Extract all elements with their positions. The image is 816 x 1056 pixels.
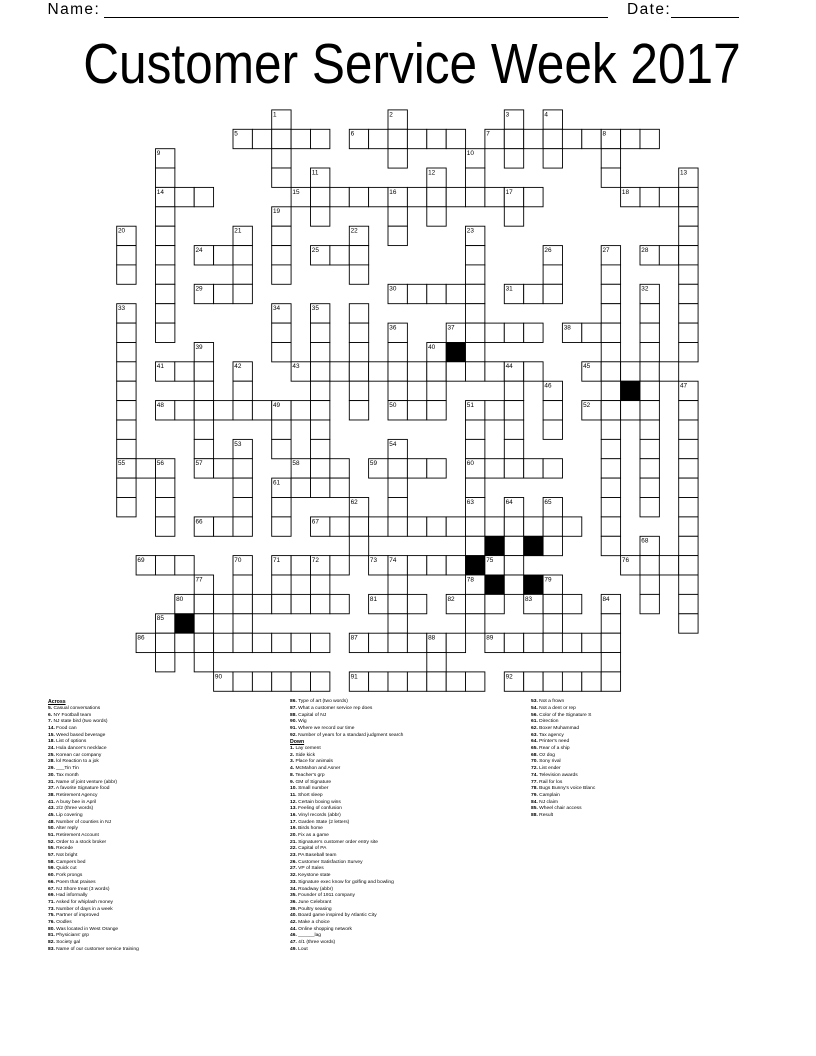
svg-text:80: 80: [176, 596, 184, 603]
svg-text:31: 31: [506, 286, 514, 293]
svg-text:73: 73: [370, 557, 378, 564]
svg-text:90: 90: [215, 673, 223, 680]
svg-text:68: 68: [641, 538, 649, 545]
svg-text:5: 5: [234, 131, 238, 138]
svg-text:64: 64: [506, 499, 514, 506]
svg-text:26: 26: [544, 247, 552, 254]
svg-text:61: 61: [273, 480, 281, 487]
svg-text:6: 6: [351, 131, 355, 138]
svg-text:53: 53: [234, 441, 242, 448]
svg-text:82: 82: [448, 596, 456, 603]
svg-text:38: 38: [564, 325, 572, 332]
svg-text:2: 2: [389, 111, 393, 118]
svg-text:71: 71: [273, 557, 281, 564]
svg-text:7: 7: [486, 131, 490, 138]
svg-text:59: 59: [370, 460, 378, 467]
svg-text:1: 1: [273, 111, 277, 118]
svg-text:85: 85: [157, 615, 165, 622]
svg-text:65: 65: [544, 499, 552, 506]
svg-text:16: 16: [389, 189, 397, 196]
svg-text:89: 89: [486, 635, 494, 642]
svg-text:29: 29: [196, 286, 204, 293]
svg-text:57: 57: [196, 460, 204, 467]
svg-text:22: 22: [351, 228, 359, 235]
svg-text:47: 47: [680, 383, 688, 390]
svg-text:50: 50: [389, 402, 397, 409]
svg-text:32: 32: [641, 286, 649, 293]
svg-text:84: 84: [603, 596, 611, 603]
svg-text:75: 75: [486, 557, 494, 564]
svg-text:8: 8: [603, 131, 607, 138]
svg-text:92: 92: [506, 673, 514, 680]
svg-text:15: 15: [292, 189, 300, 196]
svg-text:30: 30: [389, 286, 397, 293]
svg-text:14: 14: [157, 189, 165, 196]
svg-text:20: 20: [118, 228, 126, 235]
svg-text:48: 48: [157, 402, 165, 409]
svg-text:76: 76: [622, 557, 630, 564]
svg-text:78: 78: [467, 576, 475, 583]
svg-text:56: 56: [157, 460, 165, 467]
svg-text:70: 70: [234, 557, 242, 564]
svg-text:46: 46: [544, 383, 552, 390]
svg-text:55: 55: [118, 460, 126, 467]
svg-text:11: 11: [312, 169, 319, 176]
svg-text:21: 21: [234, 228, 242, 235]
svg-text:58: 58: [292, 460, 300, 467]
svg-text:49: 49: [273, 402, 281, 409]
svg-text:79: 79: [544, 576, 552, 583]
svg-text:25: 25: [312, 247, 320, 254]
svg-text:12: 12: [428, 169, 436, 176]
svg-text:69: 69: [137, 557, 145, 564]
svg-text:18: 18: [622, 189, 630, 196]
svg-text:42: 42: [234, 363, 242, 370]
svg-text:19: 19: [273, 208, 281, 215]
svg-text:72: 72: [312, 557, 320, 564]
svg-text:39: 39: [196, 344, 204, 351]
svg-text:83: 83: [525, 596, 533, 603]
svg-text:52: 52: [583, 402, 591, 409]
svg-text:44: 44: [506, 363, 514, 370]
svg-text:62: 62: [351, 499, 359, 506]
svg-text:86: 86: [137, 635, 145, 642]
svg-text:81: 81: [370, 596, 378, 603]
svg-text:43: 43: [292, 363, 300, 370]
svg-text:66: 66: [196, 518, 204, 525]
svg-text:37: 37: [448, 325, 456, 332]
svg-text:33: 33: [118, 305, 126, 312]
svg-text:87: 87: [351, 635, 359, 642]
svg-text:91: 91: [351, 673, 359, 680]
svg-text:63: 63: [467, 499, 475, 506]
svg-text:40: 40: [428, 344, 436, 351]
svg-text:28: 28: [641, 247, 649, 254]
svg-text:36: 36: [389, 325, 397, 332]
svg-text:27: 27: [603, 247, 611, 254]
svg-text:9: 9: [157, 150, 161, 157]
svg-text:34: 34: [273, 305, 281, 312]
svg-text:74: 74: [389, 557, 397, 564]
svg-text:23: 23: [467, 228, 475, 235]
svg-text:88: 88: [428, 635, 436, 642]
svg-text:13: 13: [680, 169, 688, 176]
svg-text:24: 24: [196, 247, 204, 254]
svg-text:45: 45: [583, 363, 591, 370]
svg-text:17: 17: [506, 189, 514, 196]
svg-text:54: 54: [389, 441, 397, 448]
svg-text:77: 77: [196, 576, 204, 583]
svg-text:41: 41: [157, 363, 165, 370]
svg-text:4: 4: [544, 111, 548, 118]
svg-text:51: 51: [467, 402, 475, 409]
svg-text:35: 35: [312, 305, 320, 312]
svg-text:10: 10: [467, 150, 475, 157]
svg-text:3: 3: [506, 111, 510, 118]
svg-text:60: 60: [467, 460, 475, 467]
svg-text:67: 67: [312, 518, 320, 525]
